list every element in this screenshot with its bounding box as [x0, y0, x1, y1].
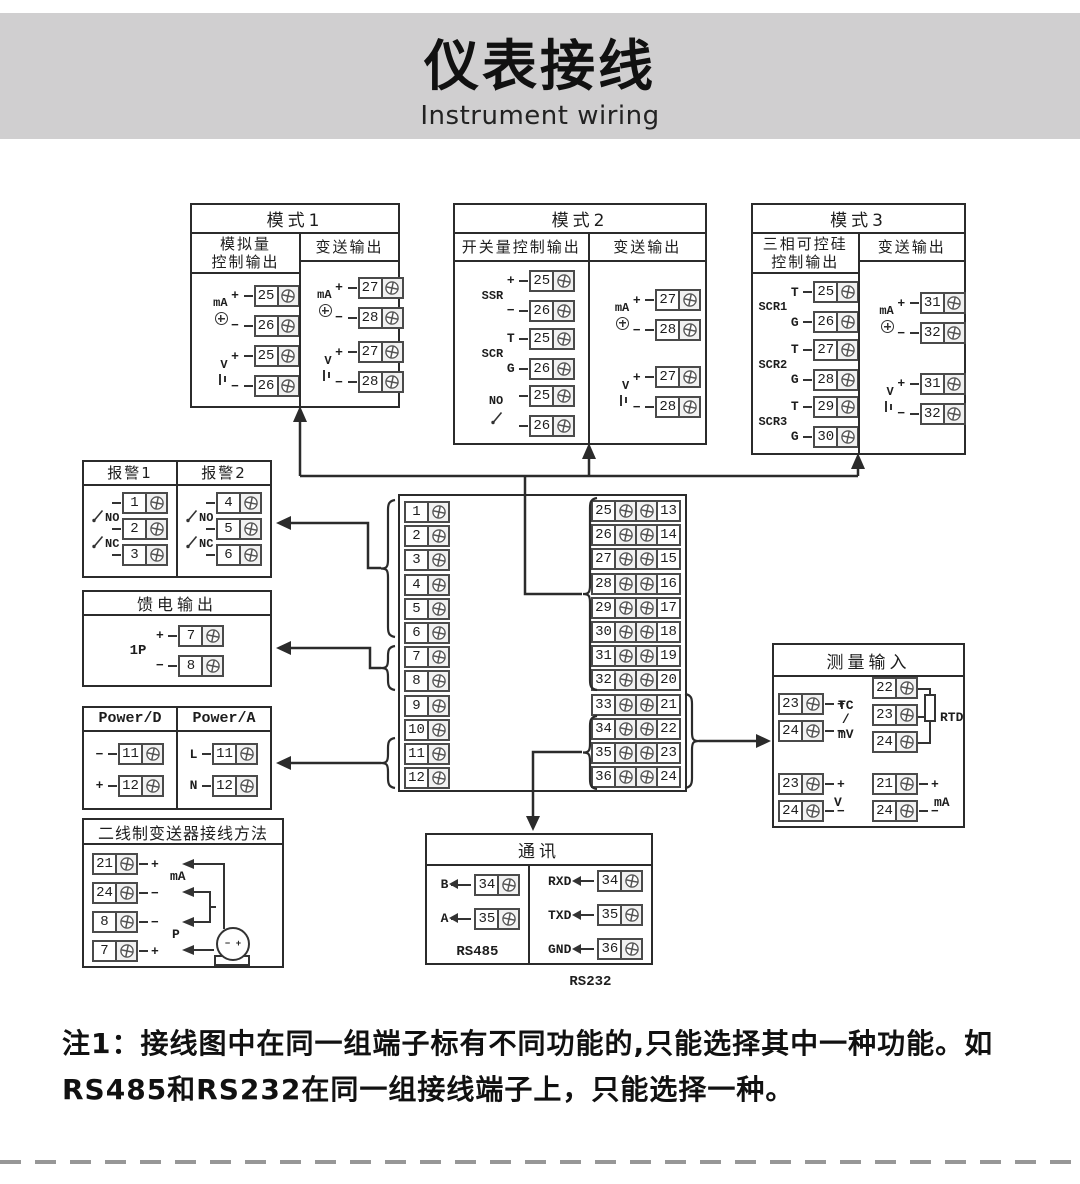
polarity-label: G [503, 361, 518, 376]
wire-line [803, 321, 812, 323]
nc-contact-label: NC [91, 534, 119, 553]
wire-line [825, 730, 834, 732]
column-header: 变送输出 [301, 234, 398, 262]
terminal: 22 [872, 677, 918, 699]
polarity-label: + [228, 349, 243, 364]
terminal-number: 30 [591, 621, 616, 643]
terminal-number: 25 [529, 270, 554, 292]
terminal-block: 123456789101112 251326142715281629173018… [398, 494, 687, 792]
screw-terminal-icon [149, 495, 165, 511]
arrowhead-icon [582, 443, 596, 459]
terminal-rows: +27−28 [629, 289, 701, 341]
group-label-wrap: SCR3 [751, 415, 787, 429]
terminal-number: 31 [920, 373, 945, 395]
wire-line [825, 703, 834, 705]
wire-line [244, 325, 253, 327]
terminal-number: 35 [591, 742, 616, 764]
column-header: 报警2 [178, 462, 270, 486]
screw-terminal [801, 693, 824, 715]
left-arrow-icon [451, 884, 471, 886]
alarm-body: 456NONC [178, 486, 270, 576]
screw-terminal [943, 292, 966, 314]
wire-line [168, 635, 177, 637]
screw-terminal-icon [899, 803, 915, 819]
terminal-row: 8− [92, 911, 159, 933]
screw-terminal [614, 597, 637, 619]
terminal-row: −28 [332, 371, 404, 393]
terminal: 35 [597, 904, 643, 926]
wire-line [803, 406, 812, 408]
group-label-wrap: V [192, 358, 228, 385]
mode3-column-scr: 三相可控硅 控制输出SCR1T25G26SCR2T27G28SCR3T29G30 [753, 234, 858, 455]
terminal-number: 30 [813, 426, 838, 448]
wire-line [645, 376, 654, 378]
screw-terminal-icon [639, 527, 655, 543]
terminal-number: 28 [358, 307, 383, 329]
terminal-row: 2 [111, 518, 168, 540]
terminal-row: +31 [894, 292, 966, 314]
interface-caption: RS232 [569, 974, 611, 990]
group-label: V [324, 354, 331, 368]
terminal: 27 [655, 289, 701, 311]
interface-caption: RS485 [456, 944, 498, 960]
polarity-label: − [151, 886, 159, 901]
label: NC [199, 537, 213, 551]
terminal-rows: +31−32 [894, 292, 966, 344]
screw-terminal-icon [840, 372, 856, 388]
terminal-number: 28 [655, 319, 680, 341]
terminal-number: 27 [591, 548, 616, 570]
terminal-row: −26 [228, 375, 300, 397]
left-arrow-icon [574, 880, 594, 882]
screw-terminal [497, 908, 520, 930]
terminal: 32 [920, 322, 966, 344]
terminal-row: 3523 [591, 742, 681, 764]
screw-terminal-icon [639, 503, 655, 519]
terminal: 23 [778, 693, 824, 715]
comm-row: RXD34 [537, 870, 643, 892]
polarity-label: + [332, 280, 347, 295]
terminal-row: +12 [92, 775, 164, 797]
screw-terminal-icon [239, 746, 255, 762]
wire-line [206, 502, 215, 504]
arrowhead-icon [293, 406, 307, 422]
terminal: 7 [178, 625, 224, 647]
terminal: 11 [212, 743, 258, 765]
terminal: 21 [872, 773, 918, 795]
screw-terminal [141, 743, 164, 765]
screw-terminal-icon [556, 418, 572, 434]
terminal-row: 3624 [591, 766, 681, 788]
mode1-column-analog: 模拟量 控制输出mA+25−26V+25−26 [192, 234, 299, 408]
measure-input-box: 测量输入 23+24−TC / mV222324RTD23+24−V21+24−… [772, 643, 965, 828]
connection-line [281, 523, 381, 568]
wire-line [803, 349, 812, 351]
terminal-row: G26 [503, 358, 575, 380]
screw-terminal-icon [682, 292, 698, 308]
switch-contact-icon [91, 508, 104, 527]
screw-terminal-icon [946, 295, 962, 311]
signal-label: RXD [537, 874, 571, 889]
group-label-wrap: V [858, 385, 894, 412]
terminal: 1 [122, 492, 168, 514]
terminal-group: SSR+25−26 [467, 270, 575, 322]
terminal-number: 12 [212, 775, 237, 797]
polarity-label: + [332, 345, 347, 360]
screw-terminal-icon [149, 521, 165, 537]
screw-terminal-icon [899, 776, 915, 792]
terminal-row: T29 [787, 396, 859, 418]
terminal-row: 25 [503, 385, 575, 407]
feed-body: 1P+7−8 [84, 616, 270, 685]
terminal-number: 26 [529, 415, 554, 437]
terminal-number: 24 [778, 720, 803, 742]
screw-terminal [235, 743, 258, 765]
screw-terminal-icon [639, 600, 655, 616]
terminal-group: SCR2T27G28 [751, 339, 859, 391]
current-source-icon [319, 304, 332, 317]
group-label: SCR3 [758, 415, 787, 429]
screw-terminal [115, 940, 138, 962]
screw-terminal [678, 289, 701, 311]
terminal-row: 23 [872, 704, 918, 726]
header-band: 仪表接线 Instrument wiring [0, 13, 1080, 139]
terminal-number: 23 [656, 742, 681, 764]
screw-terminal-icon [280, 288, 296, 304]
terminal-row: 23+ [778, 693, 845, 715]
screw-terminal [895, 731, 918, 753]
terminal: 30 [813, 426, 859, 448]
terminal-row: 24 [872, 731, 918, 753]
terminal-row: T27 [787, 339, 859, 361]
screw-terminal-icon [639, 721, 655, 737]
terminal-number: 23 [872, 704, 897, 726]
wire-line [645, 406, 654, 408]
terminal: 24 [778, 720, 824, 742]
wire-line [803, 379, 812, 381]
mode1-box: 模式1 模拟量 控制输出mA+25−26V+25−26 变送输出mA+27−28… [190, 203, 400, 408]
screw-terminal-icon [618, 745, 634, 761]
screw-terminal [614, 548, 637, 570]
terminal-row: 2715 [591, 548, 681, 570]
switch-contact-icon [185, 534, 198, 549]
screw-terminal-icon [119, 914, 135, 930]
screw-terminal [552, 385, 575, 407]
group-label-wrap: SCR1 [751, 300, 787, 314]
screw-terminal [239, 544, 262, 566]
screw-terminal-icon [618, 721, 634, 737]
terminal-number: 23 [778, 773, 803, 795]
screw-terminal [635, 500, 658, 522]
terminal-row: 22 [872, 677, 918, 699]
mode2-box: 模式2 开关量控制输出SSR+25−26SCRT25G26NO2526 变送输出… [453, 203, 707, 445]
wire-line [112, 502, 121, 504]
screw-terminal [552, 300, 575, 322]
terminal-number: 27 [655, 289, 680, 311]
screw-terminal [239, 492, 262, 514]
polarity-label: − [894, 326, 909, 341]
column-body: mA+27−28V+27−28 [590, 262, 706, 445]
terminal-number: 8 [178, 655, 203, 677]
screw-terminal-icon [899, 707, 915, 723]
screw-terminal-icon [639, 769, 655, 785]
polarity-label: − [332, 375, 347, 390]
group-label-wrap: mA [192, 296, 228, 325]
terminal-row: 24− [872, 800, 939, 822]
terminal-row: −28 [332, 307, 404, 329]
terminal-rows: +25−26 [228, 345, 300, 397]
alarm-body: 123NONC [84, 486, 176, 576]
terminal: 27 [358, 277, 404, 299]
terminal-group: NO2526 [467, 385, 575, 437]
terminal-rows: +25−26 [228, 285, 300, 337]
no-contact-label: NO [185, 508, 213, 527]
terminal-row: L11 [186, 743, 258, 765]
terminal: 31 [920, 292, 966, 314]
terminal-row: 6 [205, 544, 262, 566]
voltage-source-icon [320, 370, 332, 381]
switch-contact-icon [490, 410, 503, 425]
transmitter-icon: − + [216, 927, 250, 961]
arrowhead-icon [526, 816, 540, 831]
terminal-number: 34 [597, 870, 622, 892]
screw-terminal-icon [501, 911, 517, 927]
terminal-rows: +27−28 [629, 366, 701, 418]
screw-terminal-icon [618, 503, 634, 519]
mode3-column-retransmit: 变送输出mA+31−32V+31−32 [858, 234, 965, 455]
column-header: 三相可控硅 控制输出 [753, 234, 858, 274]
alarm1-column: 报警1123NONC [84, 462, 176, 576]
signal-label: TXD [537, 908, 571, 923]
terminal: 27 [358, 341, 404, 363]
terminal-number: 25 [529, 328, 554, 350]
terminal-group: mA+25−26 [192, 285, 300, 337]
terminal-rows: +25−26 [503, 270, 575, 322]
screw-terminal [614, 669, 637, 691]
terminal-row: 1 [111, 492, 168, 514]
screw-terminal-icon [384, 374, 400, 390]
screw-terminal-icon [384, 344, 400, 360]
screw-terminal [635, 548, 658, 570]
screw-terminal-icon [119, 943, 135, 959]
polarity-label: G [787, 315, 802, 330]
terminal-block-right: 2513261427152816291730183119322033213422… [400, 496, 685, 790]
wire-line [803, 291, 812, 293]
left-arrow-icon [574, 914, 594, 916]
terminal: 26 [529, 358, 575, 380]
polarity-label: T [787, 285, 802, 300]
polarity-label: − [894, 406, 909, 421]
polarity-label: G [787, 429, 802, 444]
screw-terminal-icon [618, 672, 634, 688]
group-label-wrap: NO [467, 394, 503, 429]
terminal-row: −28 [629, 319, 701, 341]
terminal: 34 [597, 870, 643, 892]
terminal-number: 26 [254, 375, 279, 397]
wire-line [139, 892, 148, 894]
screw-terminal [497, 874, 520, 896]
power-d-column: Power/D−11+12 [84, 708, 176, 808]
wire-line [519, 338, 528, 340]
polarity-label: + [152, 628, 167, 643]
group-label: mA [213, 296, 227, 310]
wire-line [919, 783, 928, 785]
terminal-number: 1 [122, 492, 147, 514]
terminal-row: 7+ [92, 940, 159, 962]
wire-line [910, 332, 919, 334]
group-label: V [887, 385, 894, 399]
terminal-row: T25 [787, 281, 859, 303]
wire-line [919, 810, 928, 812]
screw-terminal-icon [243, 521, 259, 537]
mode2-column-retransmit: 变送输出mA+27−28V+27−28 [588, 234, 706, 445]
wire-line [645, 299, 654, 301]
terminal: 21 [92, 853, 138, 875]
switch-contact-icon [91, 534, 104, 549]
comm-body: RXD34TXD35GND36RS232 [530, 866, 651, 992]
terminal-row: G28 [787, 369, 859, 391]
terminal-row: G26 [787, 311, 859, 333]
terminal: 27 [655, 366, 701, 388]
twowire-body: 21+24−8−7+mAP− + [84, 845, 282, 968]
terminal-number: 28 [358, 371, 383, 393]
terminal: 24 [778, 800, 824, 822]
terminal-row: 2513 [591, 500, 681, 522]
wire-line [348, 317, 357, 319]
screw-terminal-icon [145, 778, 161, 794]
screw-terminal [620, 870, 643, 892]
terminal-number: 26 [529, 300, 554, 322]
screw-terminal-icon [639, 648, 655, 664]
screw-terminal-icon [624, 941, 640, 957]
no-contact-label: NO [91, 508, 119, 527]
wire-line [348, 287, 357, 289]
polarity-label: + [894, 296, 909, 311]
terminal-rows: T25G26 [503, 328, 575, 380]
terminal-number: 14 [656, 524, 681, 546]
terminal: 36 [597, 938, 643, 960]
terminal-row: T25 [503, 328, 575, 350]
screw-terminal [635, 524, 658, 546]
terminal-number: 2 [122, 518, 147, 540]
group-label: V [622, 379, 629, 393]
screw-terminal-icon [618, 769, 634, 785]
screw-terminal-icon [946, 406, 962, 422]
screw-terminal-icon [556, 388, 572, 404]
screw-terminal-icon [639, 697, 655, 713]
polarity-label: − [228, 379, 243, 394]
terminal-number: 32 [920, 403, 945, 425]
terminal-group: V+27−28 [593, 366, 701, 418]
terminal: 12 [118, 775, 164, 797]
screw-terminal [943, 373, 966, 395]
terminal-number: 36 [597, 938, 622, 960]
terminal: 4 [216, 492, 262, 514]
terminal-row: G30 [787, 426, 859, 448]
terminal-number: 21 [92, 853, 117, 875]
group-label-wrap: V [593, 379, 629, 406]
terminal-rows: +27−28 [332, 341, 404, 393]
terminal: 31 [920, 373, 966, 395]
terminal: 34 [474, 874, 520, 896]
screw-terminal-icon [145, 746, 161, 762]
comm-body: B34A35RS485 [427, 866, 528, 965]
screw-terminal [635, 742, 658, 764]
left-arrow-icon [574, 948, 594, 950]
group-label-wrap: SSR [467, 289, 503, 303]
screw-terminal-icon [624, 907, 640, 923]
terminal-row: 21+ [872, 773, 939, 795]
terminal-number: 20 [656, 669, 681, 691]
measure-group: 23+24− [778, 693, 845, 742]
screw-terminal-icon [840, 429, 856, 445]
screw-terminal [381, 341, 404, 363]
terminal: 3 [122, 544, 168, 566]
polarity-label: + [931, 777, 939, 792]
terminal-row: −26 [228, 315, 300, 337]
screw-terminal [145, 518, 168, 540]
switch-contact-icon [185, 534, 198, 553]
screw-terminal-icon [556, 331, 572, 347]
terminal-row: 3422 [591, 718, 681, 740]
terminal: 24 [92, 882, 138, 904]
terminal-row: +27 [332, 277, 404, 299]
terminal-number: 24 [656, 766, 681, 788]
polarity-label: + [629, 370, 644, 385]
wire-line [202, 785, 211, 787]
screw-terminal [635, 573, 658, 595]
terminal-number: 28 [813, 369, 838, 391]
screw-terminal-icon [805, 776, 821, 792]
screw-terminal-icon [618, 551, 634, 567]
terminal-number: 11 [118, 743, 143, 765]
screw-terminal-icon [946, 376, 962, 392]
screw-terminal-icon [618, 527, 634, 543]
screw-terminal-icon [840, 342, 856, 358]
polarity-label: − [92, 747, 107, 762]
rs232-column: RXD34TXD35GND36RS232 [528, 866, 651, 965]
screw-terminal-icon [805, 723, 821, 739]
terminal: 28 [813, 369, 859, 391]
terminal: 32 [920, 403, 966, 425]
screw-terminal [201, 655, 224, 677]
wire-line [108, 785, 117, 787]
terminal-rows: T29G30 [787, 396, 859, 448]
screw-terminal [635, 597, 658, 619]
connection-line [281, 648, 381, 668]
terminal-row: +27 [332, 341, 404, 363]
terminal-number: 7 [92, 940, 117, 962]
group-label-wrap: mA [858, 304, 894, 333]
wire-line [112, 528, 121, 530]
screw-terminal-icon [501, 877, 517, 893]
mode2-title: 模式2 [455, 205, 705, 234]
screw-terminal [801, 773, 824, 795]
screw-terminal-icon [840, 314, 856, 330]
screw-terminal [552, 415, 575, 437]
polarity-label: L [186, 747, 201, 762]
column-header: 模拟量 控制输出 [192, 234, 299, 274]
screw-terminal-icon [280, 378, 296, 394]
terminal-row: 3220 [591, 669, 681, 691]
screw-terminal [614, 694, 637, 716]
terminal-row: −32 [894, 403, 966, 425]
terminal-number: 6 [216, 544, 241, 566]
mode2-column-switch: 开关量控制输出SSR+25−26SCRT25G26NO2526 [455, 234, 588, 445]
screw-terminal [895, 800, 918, 822]
terminal: 28 [358, 371, 404, 393]
measure-body: 23+24−TC / mV222324RTD23+24−V21+24−mA [774, 677, 963, 826]
